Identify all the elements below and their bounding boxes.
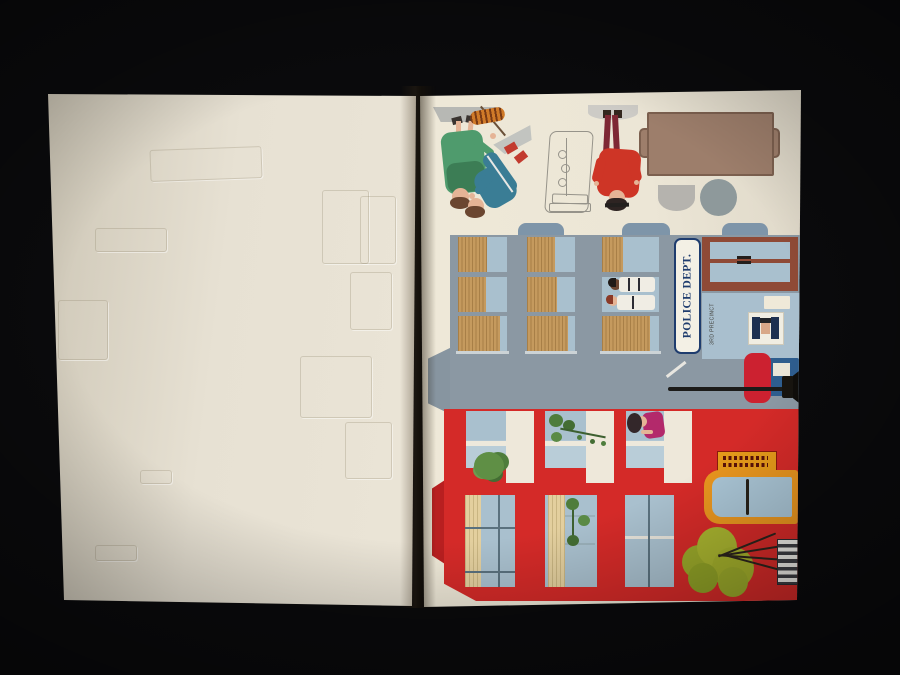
- embossed-outline: [360, 196, 396, 264]
- window-plant: [567, 535, 579, 546]
- police-dept-sign: POLICE DEPT.: [674, 238, 701, 354]
- window-mullion: [498, 495, 500, 587]
- window-blind: [527, 277, 557, 312]
- shop-door: [704, 470, 798, 524]
- embossed-outline: [95, 545, 137, 561]
- vine-leaf: [577, 435, 582, 440]
- window-blind: [458, 316, 500, 351]
- poster-uniform: [771, 317, 779, 339]
- photo-scene: POLICE DEPT. 3RD PRECINCT: [0, 0, 900, 675]
- table-top: [647, 112, 774, 176]
- red-shoe: [514, 150, 528, 164]
- shop-sign-text-row: [723, 463, 768, 467]
- lower-window: [545, 495, 597, 587]
- shop-sign-text-row: [723, 456, 768, 460]
- window-plant: [566, 498, 579, 510]
- precinct-label-text: 3RD PRECINCT: [709, 301, 718, 347]
- window-bar: [466, 441, 506, 446]
- officer-hair: [608, 278, 616, 287]
- officer-shirt: [619, 277, 655, 292]
- lamp-pole: [668, 387, 786, 391]
- hat-brim: [605, 203, 629, 208]
- hand: [594, 181, 599, 186]
- stand-outline-knob: [558, 178, 567, 187]
- vine-leaf: [601, 441, 606, 446]
- embossed-outline: [149, 146, 262, 182]
- open-book: POLICE DEPT. 3RD PRECINCT: [0, 0, 900, 675]
- window-blind: [458, 237, 487, 272]
- shop-door-handle: [746, 479, 749, 515]
- door-handle: [737, 261, 751, 264]
- stand-outline-base: [549, 203, 591, 212]
- embossed-outline: [345, 422, 392, 479]
- potted-plant: [474, 452, 504, 480]
- lamp-cap: [793, 371, 799, 403]
- cream-panel: [586, 411, 614, 483]
- window-sill: [456, 351, 509, 354]
- window-sill: [600, 351, 661, 354]
- window-mullion: [648, 495, 650, 587]
- shop-door-glass: [712, 477, 792, 517]
- embossed-outline: [300, 356, 372, 418]
- police-window: [602, 237, 659, 351]
- window-bar: [545, 441, 586, 446]
- window-mullion: [465, 571, 515, 573]
- embossed-outline: [58, 300, 108, 360]
- hand: [634, 180, 639, 185]
- woman-arm: [641, 430, 653, 434]
- half-round-top-piece: [658, 185, 695, 211]
- cream-panel: [664, 411, 692, 483]
- precinct-label: 3RD PRECINCT: [706, 300, 720, 348]
- police-window: [458, 237, 507, 351]
- hand: [490, 133, 496, 139]
- window-mullion: [465, 527, 515, 529]
- window-blind: [602, 237, 623, 272]
- embossed-outline: [350, 272, 392, 330]
- suspender: [632, 296, 634, 309]
- window-blind: [465, 495, 481, 587]
- shop-sign: [717, 451, 777, 472]
- officer-hair: [606, 295, 613, 304]
- woman-hair: [627, 413, 642, 433]
- police-door: [702, 237, 798, 291]
- police-call-box: [744, 353, 771, 403]
- lamp-head: [782, 376, 794, 398]
- mail-box-label: [773, 363, 790, 376]
- poster-uniform: [752, 317, 760, 339]
- round-top-piece: [700, 179, 737, 216]
- book-gutter: [400, 86, 436, 608]
- window-blind: [458, 277, 486, 312]
- embossed-outline: [95, 228, 167, 252]
- stand-outline-knob: [561, 164, 570, 173]
- suspender: [628, 278, 630, 291]
- bush-blob: [718, 567, 748, 597]
- window-sill: [525, 351, 577, 354]
- notice-card: [764, 296, 790, 309]
- embossed-outline: [140, 470, 172, 484]
- hair: [465, 206, 485, 218]
- window-blind: [548, 495, 565, 587]
- bush-blob: [688, 563, 718, 593]
- police-window: [527, 237, 575, 351]
- cream-panel: [506, 411, 534, 483]
- poster-hat: [760, 318, 771, 323]
- officer-poster: [748, 312, 784, 345]
- stand-outline-knob: [558, 150, 567, 159]
- lower-window: [465, 495, 515, 587]
- lower-window: [625, 495, 674, 587]
- door-pane: [710, 263, 790, 282]
- officer-shirt: [617, 295, 655, 310]
- officers-window-pane: [602, 277, 659, 312]
- door-handle: [737, 256, 751, 259]
- window-bar: [626, 441, 664, 446]
- vine-leaf: [590, 439, 595, 444]
- window-plant: [578, 515, 590, 526]
- hanging-plant: [551, 432, 562, 442]
- white-grate: [777, 539, 801, 585]
- window-blind: [527, 316, 568, 351]
- police-dept-sign-text: POLICE DEPT.: [678, 243, 697, 349]
- window-blind: [602, 316, 650, 351]
- hanging-plant: [549, 414, 563, 427]
- suspender: [638, 278, 640, 291]
- window-blind: [527, 237, 555, 272]
